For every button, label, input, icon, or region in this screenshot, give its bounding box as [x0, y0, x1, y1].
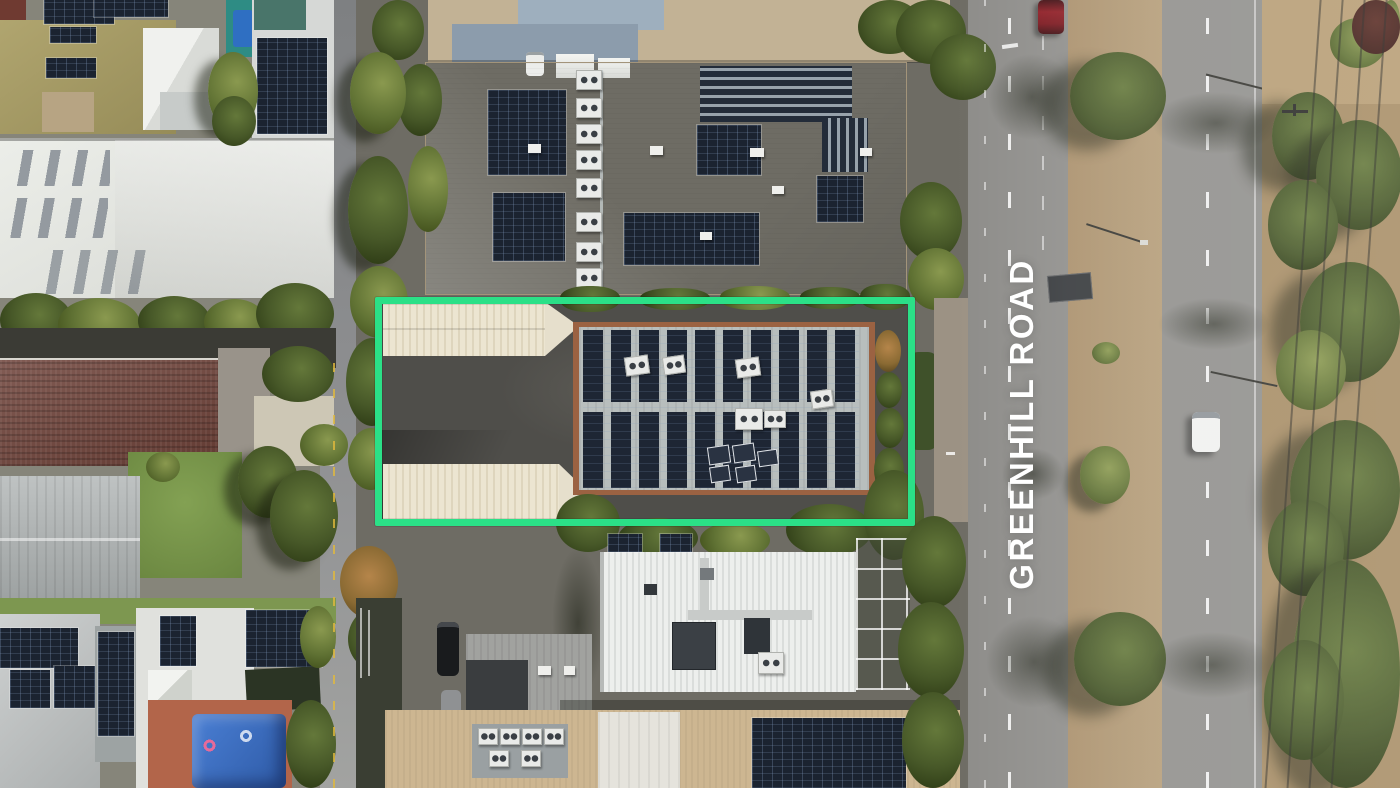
solar-array	[624, 213, 759, 265]
ac-unit	[576, 124, 602, 144]
building-edge-lines	[368, 610, 370, 676]
pool-equipment	[233, 10, 253, 47]
outbuilding-dark-section	[466, 660, 528, 712]
solar-array	[160, 616, 196, 666]
commercial-roof-section	[452, 24, 638, 62]
tree-canopy	[300, 424, 348, 466]
ac-unit	[489, 750, 509, 767]
parking-line	[946, 452, 955, 455]
ac-unit	[478, 728, 498, 745]
street-light-head	[1140, 240, 1148, 245]
roof-vent	[538, 666, 551, 675]
solar-array	[10, 670, 50, 708]
solar-array	[608, 534, 642, 552]
road-name-label: GREENHILL ROAD	[1003, 258, 1041, 589]
solar-array	[46, 58, 96, 78]
ac-unit	[576, 70, 602, 90]
roof-plant-unit	[644, 584, 657, 595]
parking-bays	[934, 298, 968, 522]
solar-array	[54, 666, 98, 708]
building-edge-lines	[360, 608, 362, 678]
bus-shelter	[1047, 272, 1093, 303]
roof-hip-shading	[115, 140, 334, 298]
roof-slab	[598, 712, 680, 788]
ac-unit	[576, 178, 602, 198]
house-roof	[0, 358, 218, 466]
tree-shadow	[1152, 92, 1280, 154]
tree-canopy	[270, 470, 338, 562]
tree-canopy	[212, 96, 256, 146]
solar-array	[0, 628, 78, 668]
roof-vent	[650, 146, 663, 155]
skylight-row	[6, 150, 110, 186]
roof-plant-unit	[700, 568, 714, 580]
roof-plant-unit	[744, 618, 770, 654]
solar-array	[94, 0, 168, 17]
roof-vent	[528, 144, 541, 153]
solar-array	[50, 27, 96, 43]
ac-unit	[500, 728, 520, 745]
tree-shadow	[1158, 298, 1270, 350]
ac-unit	[758, 652, 784, 674]
solar-hot-water-collectors	[822, 118, 868, 172]
warehouse-roof	[600, 552, 856, 692]
tree-canopy	[300, 606, 336, 668]
shrub	[1352, 0, 1400, 54]
solar-array	[752, 718, 906, 788]
ac-unit	[576, 268, 602, 288]
roof-plant-unit	[672, 622, 716, 670]
lane-marking	[984, 0, 986, 788]
solar-array	[817, 176, 863, 222]
ac-unit	[521, 750, 541, 767]
tree-canopy	[1264, 640, 1344, 760]
solar-array	[98, 632, 134, 736]
ac-unit	[522, 728, 542, 745]
roof-walkway	[700, 558, 709, 614]
ac-unit	[576, 98, 602, 118]
tree-shadow	[988, 54, 1076, 140]
roof-vent	[750, 148, 764, 157]
roof-vent	[564, 666, 575, 675]
tree-canopy	[348, 156, 408, 264]
pool-float	[202, 738, 217, 753]
car-red	[1038, 0, 1064, 34]
aerial-photo-scene: GREENHILL ROAD	[0, 0, 1400, 788]
ac-unit	[576, 150, 602, 170]
tree-canopy	[898, 602, 964, 698]
house-roof	[42, 92, 94, 132]
roof-ridge	[0, 538, 140, 541]
road-centre-line	[333, 360, 335, 788]
roof-vent	[772, 186, 784, 194]
roof-vent	[700, 232, 712, 240]
tree-canopy	[902, 516, 966, 608]
solar-array	[660, 534, 692, 552]
tree-canopy	[262, 346, 334, 402]
shrub	[1080, 446, 1130, 504]
pool-float	[238, 728, 254, 744]
court-roof	[254, 0, 306, 30]
property-boundary-overlay	[375, 297, 915, 526]
shrub	[1092, 342, 1120, 364]
tree-canopy	[286, 700, 336, 788]
roof-vent	[860, 148, 872, 156]
ac-unit	[544, 728, 564, 745]
tree-canopy	[408, 146, 448, 232]
car-white	[1192, 412, 1220, 452]
solar-array	[257, 38, 327, 134]
solar-hot-water-collectors	[700, 66, 852, 122]
parked-car	[437, 622, 459, 676]
solar-array	[488, 90, 566, 175]
ac-unit	[576, 242, 602, 262]
lawn	[128, 452, 242, 578]
tree-canopy	[350, 52, 406, 134]
tree-shadow	[1150, 632, 1274, 698]
ac-unit	[576, 212, 602, 232]
tree-canopy	[930, 34, 996, 100]
solar-array	[493, 193, 565, 261]
tree-canopy	[372, 0, 424, 60]
skylight-row	[0, 198, 108, 238]
tree-shadow	[986, 616, 1082, 708]
tree-canopy	[146, 452, 180, 482]
power-pole	[1293, 104, 1296, 116]
tree-canopy	[902, 692, 964, 788]
